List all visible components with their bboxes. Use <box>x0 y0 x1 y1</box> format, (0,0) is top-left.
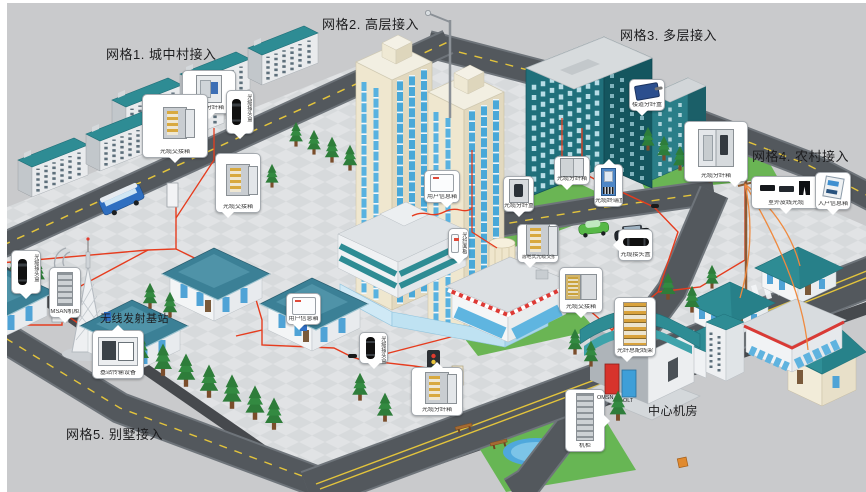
callout-closure-left: 光缆接头盒 <box>11 250 41 294</box>
two-door-cabinet-icon <box>687 124 745 172</box>
callout-closure-villa: 光缆接头盒 <box>359 332 388 364</box>
callout-grid1-cross-cabinet: 光缆交接箱 <box>142 94 208 158</box>
grid4-label: 网格4. 农村接入 <box>752 146 849 165</box>
closure-icon <box>621 232 650 251</box>
grid2-label: 网格2. 高层接入 <box>322 14 419 33</box>
closure-icon <box>14 253 31 291</box>
callout-user-info-box-tower: 用户信息箱 <box>424 170 460 203</box>
frame-left <box>0 0 7 492</box>
callout-closure-h: 光缆接头盒 <box>618 229 653 261</box>
cabinet-rack-icon <box>52 270 78 308</box>
corridor-device-icon <box>632 82 662 101</box>
callout-cross-cabinet-3: 光缆交接箱 <box>559 267 603 313</box>
olt-label: OLT <box>623 398 633 404</box>
grid5-label: 网格5. 别墅接入 <box>66 424 163 443</box>
callout-fiber-panel: 光纤面板 <box>448 228 469 259</box>
cross-cabinet-icon <box>218 156 258 203</box>
callout-home-info-box: 入户信息箱 <box>815 172 851 210</box>
callout-odf: 光纤总配线架 <box>614 297 656 357</box>
callout-grid1-cross-cabinet-2: 光缆交接箱 <box>215 153 261 213</box>
callout-fdb-villa: 光缆分纤箱 <box>411 367 463 416</box>
callout-drop-cable: 室外皮线光缆 <box>751 176 821 209</box>
closure-icon <box>229 93 244 131</box>
cabinet-pair-icon <box>562 270 600 303</box>
grid3-label: 网格3. 多层接入 <box>620 25 717 44</box>
callout-floor-cross-cabinet: 落地式光缆交接箱 <box>517 224 559 263</box>
scene-svg <box>0 0 866 492</box>
cross-cabinet-icon <box>414 370 460 406</box>
callout-splitter-box: 光缆终端盒 <box>594 164 623 207</box>
info-panel-icon <box>289 296 318 315</box>
network-grid-diagram: 网格1. 城中村接入 网格2. 高层接入 网格3. 多层接入 网格4. 农村接入… <box>0 0 866 492</box>
callout-bts-equipment: 基站传输设备 <box>92 330 144 379</box>
cabinet-icon <box>557 158 587 177</box>
bts-equipment-icon <box>95 333 141 369</box>
callout-fdb-2: 光缆分纤箱 <box>554 156 590 185</box>
closure-icon <box>362 335 378 361</box>
callout-fdb-tower: 光缆分纤盒 <box>503 176 534 212</box>
callout-corridor-box: 楼道分纤盒 <box>629 79 665 111</box>
callout-msan-cabinet: MSAN机柜 <box>49 267 81 318</box>
grid1-label: 网格1. 城中村接入 <box>106 44 216 63</box>
omsn-label: OMSN <box>597 395 614 401</box>
distribution-box-icon <box>506 179 531 203</box>
drop-cable-parts-icon <box>754 179 818 199</box>
callout-grid1-closure: 光缆接头盒 <box>226 90 254 134</box>
info-panel-icon <box>427 173 457 193</box>
crate <box>677 457 688 468</box>
cross-cabinet-icon <box>145 97 205 148</box>
home-info-box-icon <box>818 175 848 200</box>
base-station-label: 无线发射基站 <box>100 310 169 326</box>
odf-rack-icon <box>617 300 653 347</box>
splitter-box-icon <box>597 167 620 197</box>
cross-cabinet-icon <box>520 224 556 256</box>
callout-fdb-rural: 光缆分纤箱 <box>684 121 748 182</box>
frame-top <box>0 0 866 3</box>
callout-user-info-box-villa: 用户信息箱 <box>286 293 321 325</box>
fiber-panel-icon <box>451 231 459 256</box>
central-room-label: 中心机房 <box>648 402 698 419</box>
